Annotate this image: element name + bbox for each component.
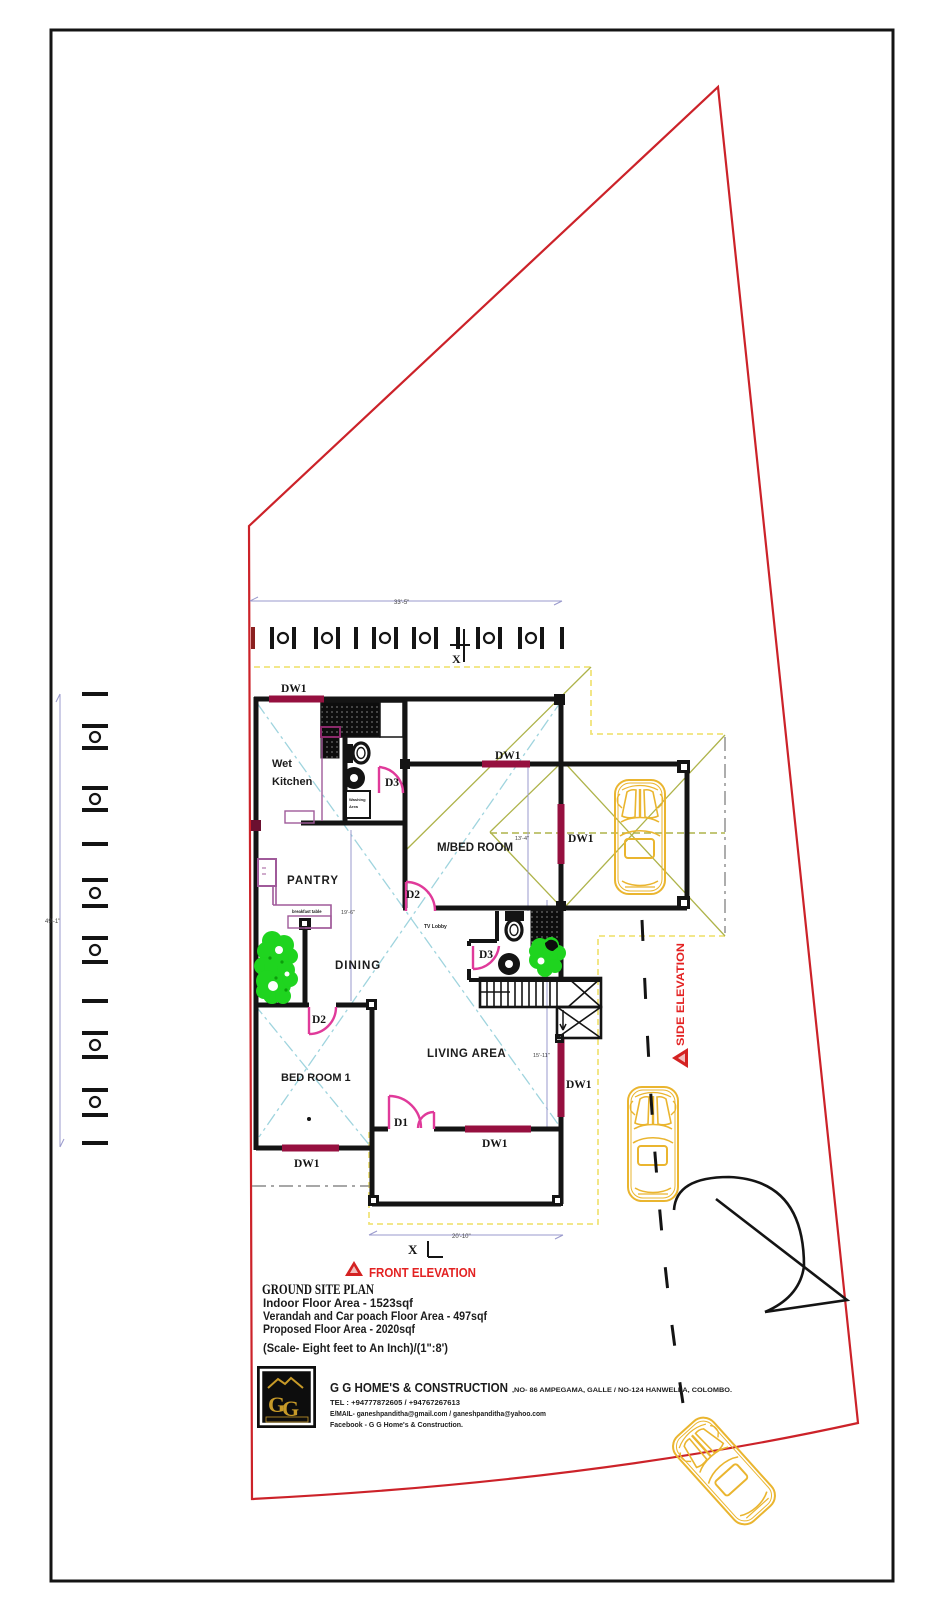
svg-text:Verandah and Car poach Floor A: Verandah and Car poach Floor Area - 497s… [263,1309,488,1323]
svg-text:x: x [456,635,460,644]
svg-text:13'-4": 13'-4" [515,836,529,842]
svg-text:15'-11": 15'-11" [533,1053,550,1059]
svg-text:E/MAIL- ganeshpanditha@gmail.c: E/MAIL- ganeshpanditha@gmail.com / ganes… [330,1409,546,1418]
svg-text:X: X [408,1242,418,1257]
svg-text:Area: Area [349,804,359,809]
svg-text:Proposed Floor Area - 2020sqf: Proposed Floor Area - 2020sqf [263,1322,416,1336]
svg-text:Washing: Washing [349,797,366,802]
svg-text:D2: D2 [406,889,420,901]
svg-text:FRONT ELEVATION: FRONT ELEVATION [369,1266,476,1280]
svg-text:DW1: DW1 [281,683,307,695]
svg-text:(Scale- Eight feet to An Inch): (Scale- Eight feet to An Inch)/(1":8') [263,1341,448,1355]
svg-text:49'-1": 49'-1" [45,919,60,925]
svg-text:Indoor Floor Area - 1523sqf: Indoor Floor Area - 1523sqf [263,1296,414,1310]
svg-text:19'-6": 19'-6" [341,910,355,916]
svg-text:Wet: Wet [272,758,292,770]
svg-text:Facebook - G G Home's & Con: Facebook - G G Home's & Construction. [330,1422,463,1429]
svg-text:X: X [452,652,461,666]
svg-text:D3: D3 [385,777,399,789]
svg-text:M/BED ROOM: M/BED ROOM [437,842,513,854]
svg-text:DW1: DW1 [566,1079,592,1091]
svg-text:TEL : +94777872605 / +947672: TEL : +94777872605 / +94767267613 [330,1398,460,1407]
svg-text:G G HOME'S & CONSTRUCTION: G G HOME'S & CONSTRUCTION [330,1381,508,1395]
svg-text:TV Lobby: TV Lobby [424,924,447,930]
svg-text:20'-10": 20'-10" [452,1234,471,1240]
svg-text:breakfast table: breakfast table [292,909,322,914]
svg-text:DW1: DW1 [568,833,594,845]
svg-text:BED ROOM 1: BED ROOM 1 [281,1072,351,1084]
svg-text:PANTRY: PANTRY [287,875,339,887]
svg-text:DINING: DINING [335,960,381,972]
svg-text:Kitchen: Kitchen [272,776,313,788]
svg-text:D3: D3 [479,949,493,961]
svg-text:,NO- 86 AMPEGAMA, GALLE / NO-1: ,NO- 86 AMPEGAMA, GALLE / NO-124 HANWELL… [512,1387,732,1394]
svg-text:SIDE ELEVATION: SIDE ELEVATION [675,943,687,1046]
svg-text:DW1: DW1 [294,1158,320,1170]
svg-text:33'-5": 33'-5" [394,600,409,606]
svg-text:D2: D2 [312,1014,326,1026]
svg-text:LIVING AREA: LIVING AREA [427,1048,506,1060]
svg-text:DW1: DW1 [495,750,521,762]
svg-text:DW1: DW1 [482,1138,508,1150]
svg-text:D1: D1 [394,1117,408,1129]
